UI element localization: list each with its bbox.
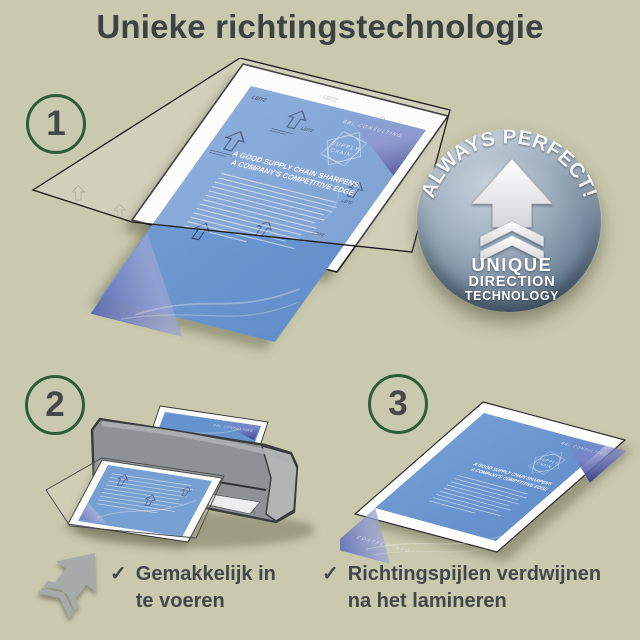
direction-arrow-icon bbox=[34, 538, 115, 622]
caption-right-line1: Richtingspijlen verdwijnen bbox=[348, 563, 601, 585]
badge-line-unique: UNIQUE bbox=[472, 254, 553, 275]
pouch-top-foil bbox=[33, 58, 450, 252]
checkmark-icon: ✓ bbox=[322, 561, 339, 615]
always-perfect-badge: ALWAYS PERFECT! UNIQUE DIRECTION TECHNOL… bbox=[417, 130, 601, 312]
scene-open-pouch: LEITZ LEITZ LEITZ LEITZ bbox=[10, 58, 460, 368]
infographic-canvas: Unieke richtingstechnologie 1 2 3 bbox=[0, 0, 640, 640]
badge-line-direction: DIRECTION bbox=[469, 274, 556, 290]
badge-line-technology: TECHNOLOGY bbox=[465, 289, 559, 303]
caption-right-line2: na het lamineren bbox=[348, 590, 507, 612]
up-arrow-icon bbox=[472, 159, 553, 261]
caption-easy-feed: ✓ Gemakkelijk in te voeren bbox=[110, 561, 276, 615]
caption-left-line2: te voeren bbox=[136, 590, 225, 612]
caption-arrows-disappear: ✓ Richtingspijlen verdwijnen na het lami… bbox=[322, 561, 601, 615]
caption-left-line1: Gemakkelijk in bbox=[136, 563, 276, 585]
checkmark-icon: ✓ bbox=[110, 561, 127, 615]
page-title: Unieke richtingstechnologie bbox=[0, 8, 640, 46]
scene-laminated-result: BBL CONSULTING CONTACT INFO SUPPLY CHAIN… bbox=[340, 380, 640, 580]
